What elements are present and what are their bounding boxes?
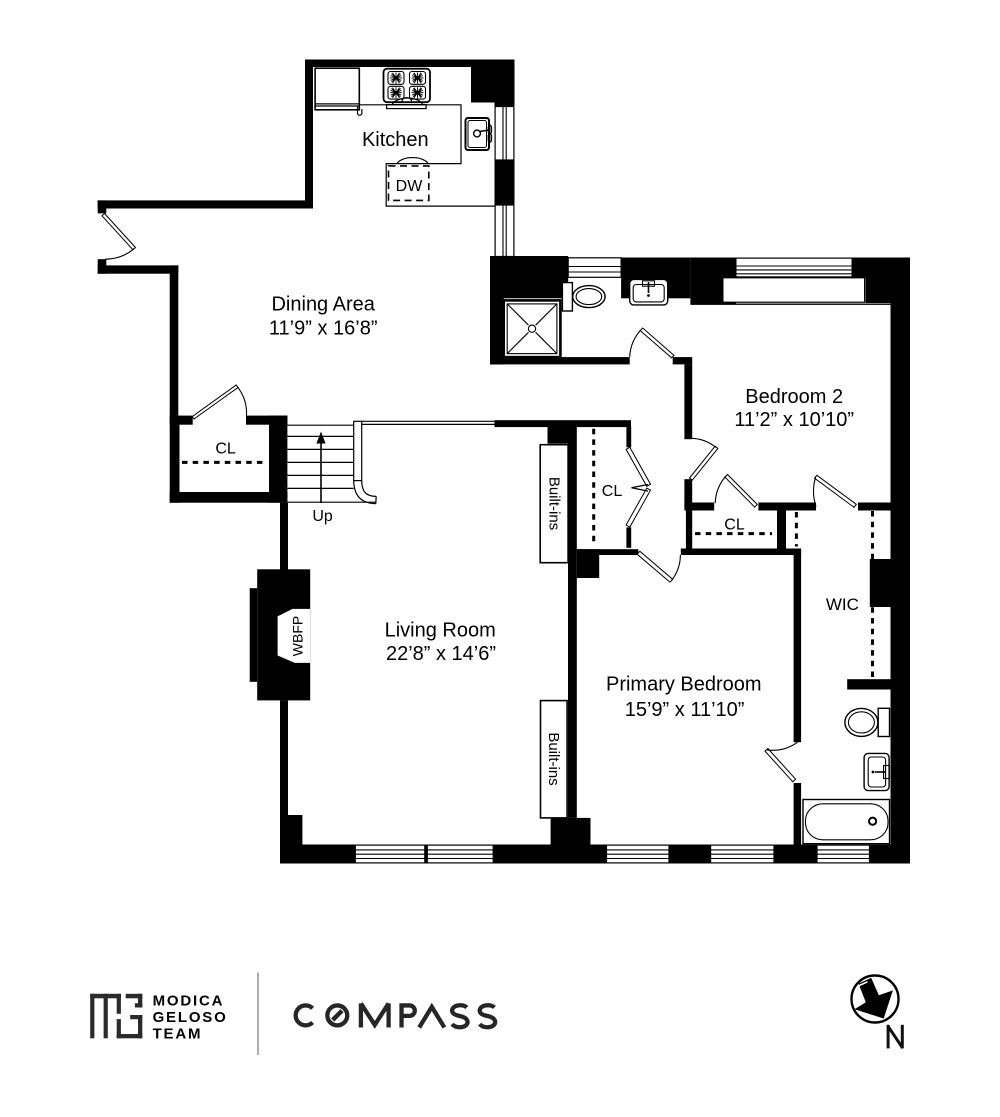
svg-text:Kitchen: Kitchen xyxy=(362,129,429,151)
svg-text:Living Room: Living Room xyxy=(385,620,496,642)
svg-text:WIC: WIC xyxy=(826,595,859,614)
svg-text:Up: Up xyxy=(312,508,333,525)
svg-text:Bedroom 2: Bedroom 2 xyxy=(745,386,843,408)
svg-text:11’2” x 10’10”: 11’2” x 10’10” xyxy=(734,409,854,431)
svg-text:WBFP: WBFP xyxy=(290,616,306,656)
svg-text:CL: CL xyxy=(215,441,236,458)
svg-text:11’9” x 16’8”: 11’9” x 16’8” xyxy=(269,317,378,339)
svg-text:GELOSO: GELOSO xyxy=(153,1009,228,1026)
svg-text:15’9” x 11’10”: 15’9” x 11’10” xyxy=(625,699,745,721)
svg-text:Primary Bedroom: Primary Bedroom xyxy=(606,673,762,695)
svg-text:Dining Area: Dining Area xyxy=(271,294,375,316)
svg-text:MODICA: MODICA xyxy=(153,993,225,1010)
svg-text:Built-ins: Built-ins xyxy=(545,732,562,785)
svg-text:Built-ins: Built-ins xyxy=(546,477,563,530)
svg-text:22’8” x 14’6”: 22’8” x 14’6” xyxy=(386,643,496,665)
svg-text:CL: CL xyxy=(602,483,623,500)
svg-text:TEAM: TEAM xyxy=(153,1026,203,1043)
svg-text:DW: DW xyxy=(396,178,424,195)
svg-text:CL: CL xyxy=(724,516,745,533)
